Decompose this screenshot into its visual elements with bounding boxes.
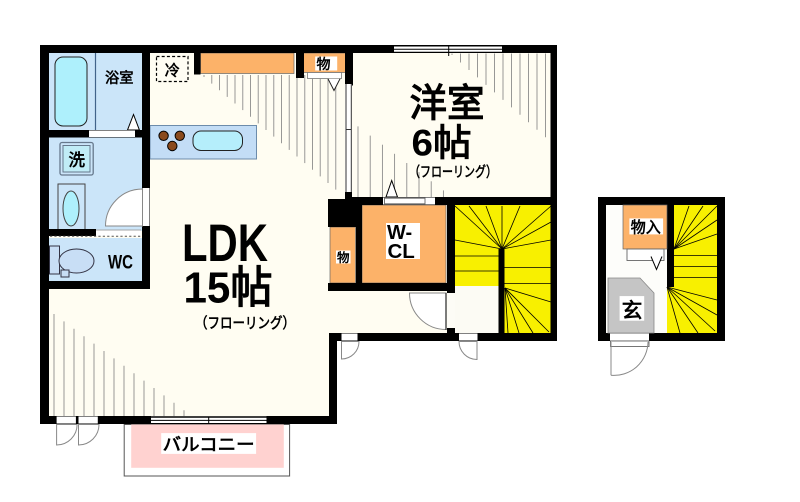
svg-text:物: 物 — [337, 250, 350, 265]
svg-text:バルコニー: バルコニー — [163, 434, 255, 454]
svg-text:洋室: 洋室 — [410, 83, 485, 126]
svg-text:WC: WC — [108, 253, 133, 274]
svg-text:（フローリング）: （フローリング） — [409, 163, 497, 181]
svg-text:物入: 物入 — [631, 218, 661, 237]
svg-text:浴室: 浴室 — [105, 69, 134, 87]
svg-text:玄: 玄 — [622, 299, 643, 323]
svg-text:冷: 冷 — [165, 62, 180, 80]
svg-text:15帖: 15帖 — [184, 264, 273, 313]
svg-text:6帖: 6帖 — [412, 123, 472, 164]
svg-text:（フローリング）: （フローリング） — [195, 314, 295, 332]
svg-text:洗: 洗 — [68, 150, 85, 170]
svg-text:CL: CL — [388, 240, 415, 263]
svg-text:物: 物 — [317, 56, 331, 72]
